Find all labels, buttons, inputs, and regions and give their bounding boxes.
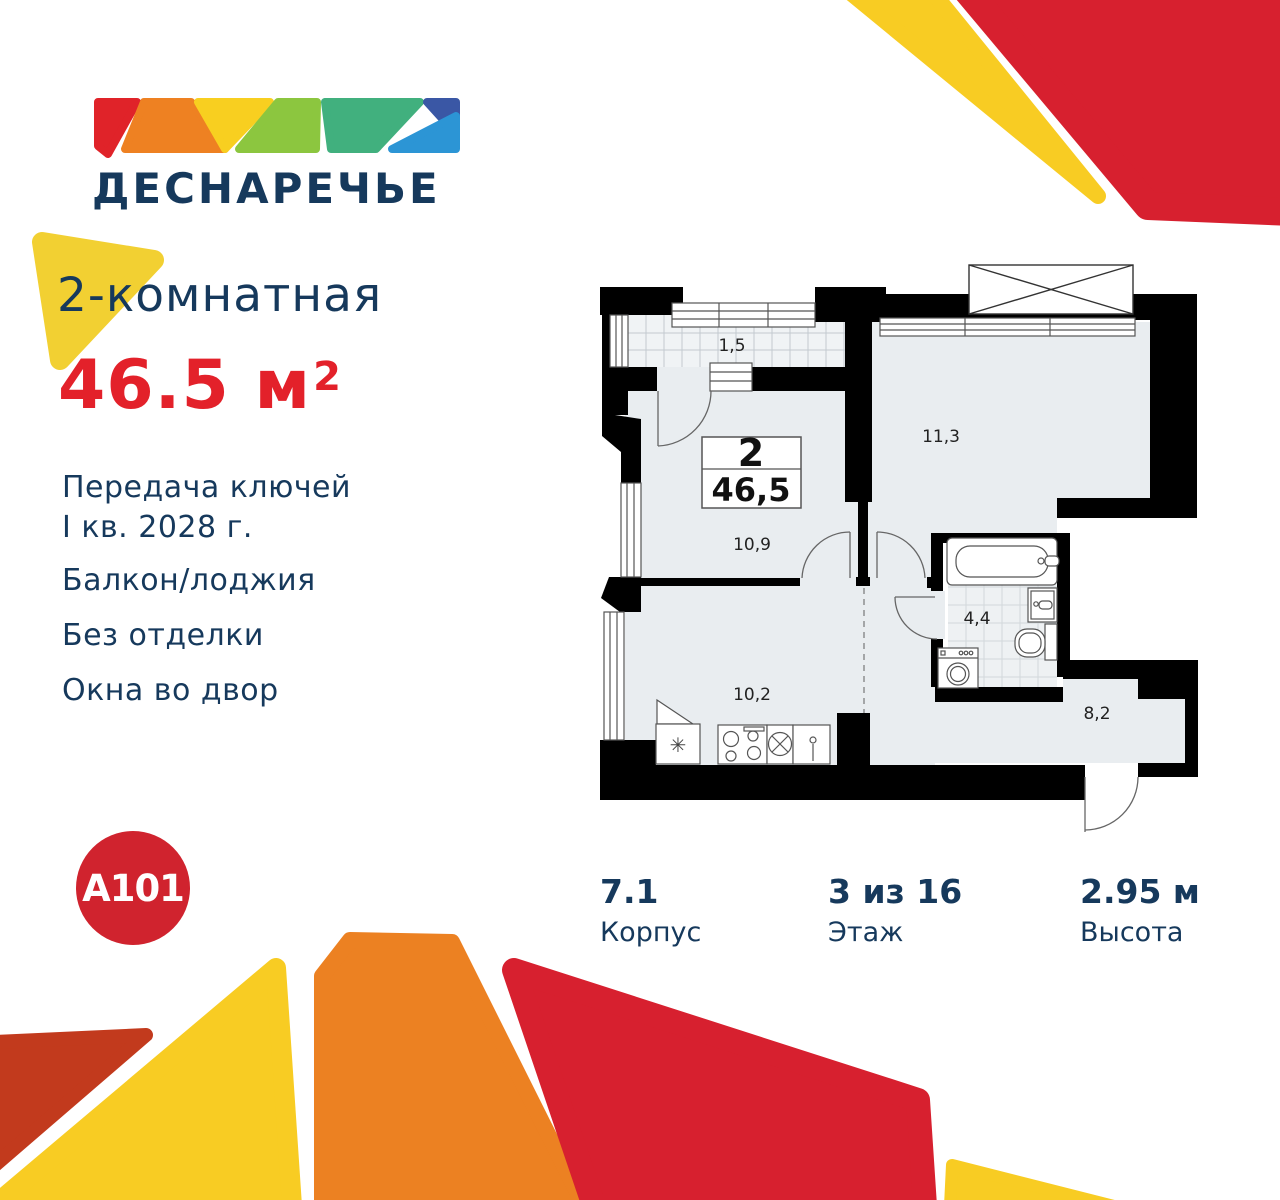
stat-floor-label: Этаж: [828, 917, 962, 948]
area-number: 46.5: [58, 346, 230, 425]
listing-card: { "brand": { "name": "ДЕСНАРЕЧЬЕ", "deve…: [0, 0, 1280, 1200]
listing-area-value: 46.5 м2: [58, 346, 340, 425]
fridge-snowflake-icon: ✳: [670, 733, 687, 757]
window-beside-balcony-door: [710, 363, 752, 391]
brand-logo-banner: [92, 86, 464, 170]
developer-logo-text: A101: [82, 867, 184, 910]
listing-type-title: 2-комнатная: [57, 268, 382, 323]
stat-building: 7.1 Корпус: [600, 872, 701, 948]
window-room-left: [621, 483, 641, 577]
area-label-kitchen-living: 10,2: [733, 685, 771, 705]
stat-height: 2.95 м Высота: [1080, 872, 1200, 948]
feature-keys-line2: I кв. 2028 г.: [62, 510, 253, 545]
area-label-balcony: 1,5: [718, 336, 745, 356]
developer-logo: A101: [76, 831, 190, 945]
kitchen-counter-sink: [793, 725, 830, 764]
stat-floor: 3 из 16 Этаж: [828, 872, 962, 948]
vent-shaft: [969, 265, 1133, 314]
window-bedroom-top: [880, 318, 1135, 336]
feature-balcony: Балкон/лоджия: [62, 563, 316, 598]
decor-bottom-right-yellow: [950, 1165, 1114, 1200]
area-label-bedroom: 11,3: [922, 427, 960, 447]
feature-finishing: Без отделки: [62, 618, 264, 653]
stat-height-value: 2.95 м: [1080, 872, 1200, 911]
area-unit: м: [254, 346, 311, 425]
window-kitchen-left: [604, 612, 624, 740]
stat-building-value: 7.1: [600, 872, 701, 911]
window-balcony-left: [610, 315, 628, 367]
door-entry: [1085, 777, 1138, 832]
stat-floor-value: 3 из 16: [828, 872, 962, 911]
info-box-area: 46,5: [712, 471, 791, 509]
info-box-rooms: 2: [738, 431, 764, 475]
window-balcony-top: [672, 303, 815, 327]
feature-windows: Окна во двор: [62, 673, 279, 708]
area-label-hallway: 8,2: [1083, 704, 1110, 724]
toilet-tank: [1045, 624, 1057, 660]
brand-name: ДЕСНАРЕЧЬЕ: [92, 164, 492, 213]
stat-height-label: Высота: [1080, 917, 1200, 948]
feature-keys-line1: Передача ключей: [62, 470, 351, 505]
stat-building-label: Корпус: [600, 917, 701, 948]
area-label-room: 10,9: [733, 535, 771, 555]
area-exponent: 2: [313, 354, 342, 400]
floor-plan: ✳ 2 46,5 1,5 11,3 10,9 10,2 4,4 8,2: [594, 258, 1206, 870]
decor-bottom-red: [514, 970, 925, 1200]
area-label-bathroom: 4,4: [963, 609, 990, 629]
plan-info-box: 2 46,5: [702, 431, 801, 509]
